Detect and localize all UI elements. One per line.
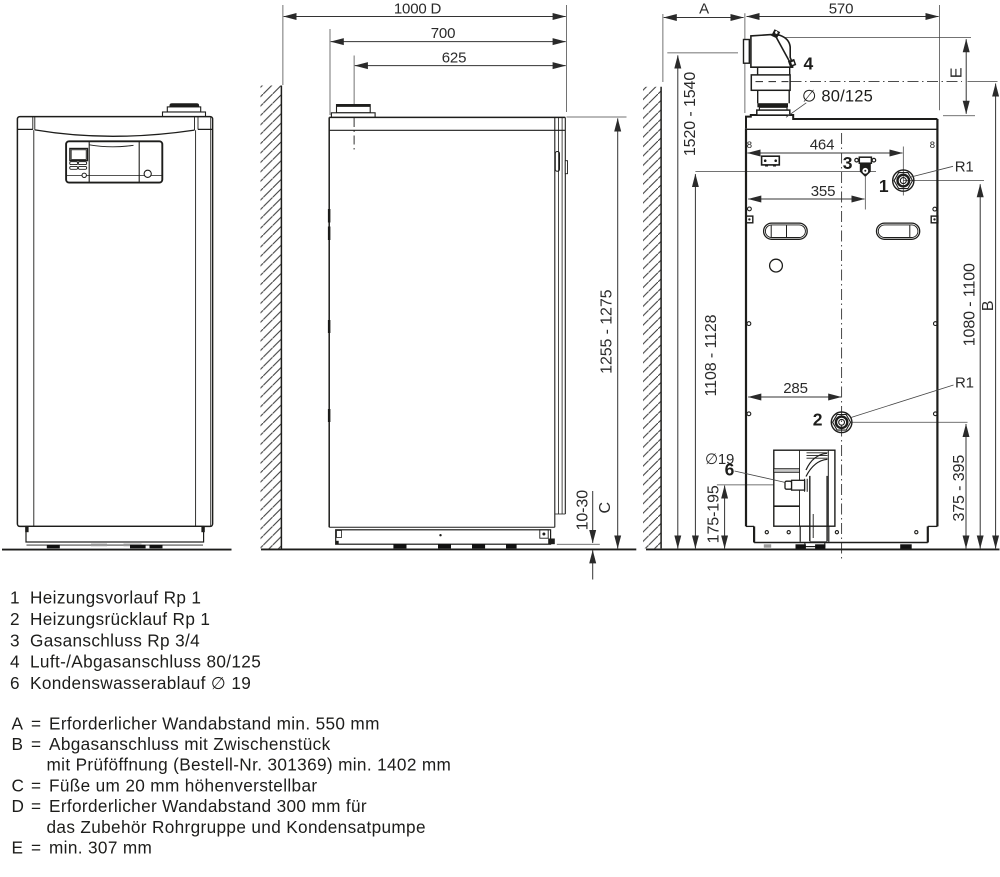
svg-text:Luft-/Abgasanschluss 80/125: Luft-/Abgasanschluss 80/125 (30, 652, 261, 672)
svg-text:4: 4 (10, 652, 20, 672)
svg-text:1520 - 1540: 1520 - 1540 (682, 72, 699, 157)
svg-text:1: 1 (879, 176, 889, 196)
svg-text:4: 4 (804, 53, 814, 73)
svg-text:das Zubehör Rohrgruppe und Kon: das Zubehör Rohrgruppe und Kondensatpump… (47, 817, 426, 837)
svg-text:464: 464 (810, 136, 834, 153)
svg-text:mit Prüföffnung (Bestell-Nr. 3: mit Prüföffnung (Bestell-Nr. 301369) min… (47, 755, 452, 775)
svg-text:min. 307 mm: min. 307 mm (49, 837, 152, 857)
svg-text:2: 2 (813, 410, 823, 430)
svg-text:Gasanschluss Rp 3/4: Gasanschluss Rp 3/4 (30, 630, 200, 650)
svg-text:6: 6 (10, 673, 20, 693)
svg-text:B: B (980, 301, 997, 312)
svg-text:625: 625 (442, 49, 466, 66)
svg-text:Füße um 20 mm höhenverstellbar: Füße um 20 mm höhenverstellbar (49, 775, 317, 795)
svg-text:700: 700 (431, 25, 455, 42)
svg-text:A: A (12, 713, 24, 733)
svg-text:8: 8 (930, 140, 935, 151)
svg-text:355: 355 (811, 183, 835, 200)
svg-text:Kondenswasserablauf ∅ 19: Kondenswasserablauf ∅ 19 (30, 673, 251, 693)
svg-text:C: C (12, 775, 25, 795)
svg-text:=: = (31, 796, 41, 816)
svg-text:Erforderlicher Wandabstand min: Erforderlicher Wandabstand min. 550 mm (49, 713, 380, 733)
svg-text:Abgasanschluss mit Zwischenstü: Abgasanschluss mit Zwischenstück (49, 734, 331, 754)
svg-text:2: 2 (10, 609, 20, 629)
svg-text:C: C (597, 502, 614, 513)
svg-text:R1: R1 (955, 375, 974, 392)
svg-text:375 - 395: 375 - 395 (951, 455, 968, 522)
svg-text:D: D (12, 796, 25, 816)
svg-text:=: = (31, 713, 41, 733)
svg-text:1: 1 (10, 588, 20, 608)
svg-text:∅ 80/125: ∅ 80/125 (802, 88, 873, 106)
svg-text:R1: R1 (955, 158, 974, 175)
svg-text:E: E (12, 837, 24, 857)
svg-text:∅19: ∅19 (705, 451, 734, 468)
svg-text:=: = (31, 775, 41, 795)
svg-text:1000 D: 1000 D (394, 0, 442, 17)
svg-text:A: A (699, 0, 709, 17)
svg-text:8: 8 (747, 140, 752, 151)
svg-text:3: 3 (10, 630, 20, 650)
svg-text:=: = (31, 837, 41, 857)
svg-text:Erforderlicher Wandabstand 300: Erforderlicher Wandabstand 300 mm für (49, 796, 367, 816)
svg-text:570: 570 (829, 0, 853, 17)
svg-text:10-30: 10-30 (574, 490, 591, 531)
svg-text:Heizungsvorlauf Rp 1: Heizungsvorlauf Rp 1 (30, 588, 201, 608)
svg-text:285: 285 (783, 380, 807, 397)
svg-text:E: E (949, 68, 966, 79)
svg-text:175-195: 175-195 (705, 485, 722, 543)
svg-text:3: 3 (843, 153, 853, 173)
svg-text:B: B (12, 734, 24, 754)
svg-text:1255 - 1275: 1255 - 1275 (599, 289, 616, 374)
svg-text:1108 - 1128: 1108 - 1128 (703, 314, 720, 396)
svg-text:=: = (31, 734, 41, 754)
svg-text:Heizungsrücklauf Rp 1: Heizungsrücklauf Rp 1 (30, 609, 210, 629)
svg-text:1080 - 1100: 1080 - 1100 (961, 263, 978, 346)
